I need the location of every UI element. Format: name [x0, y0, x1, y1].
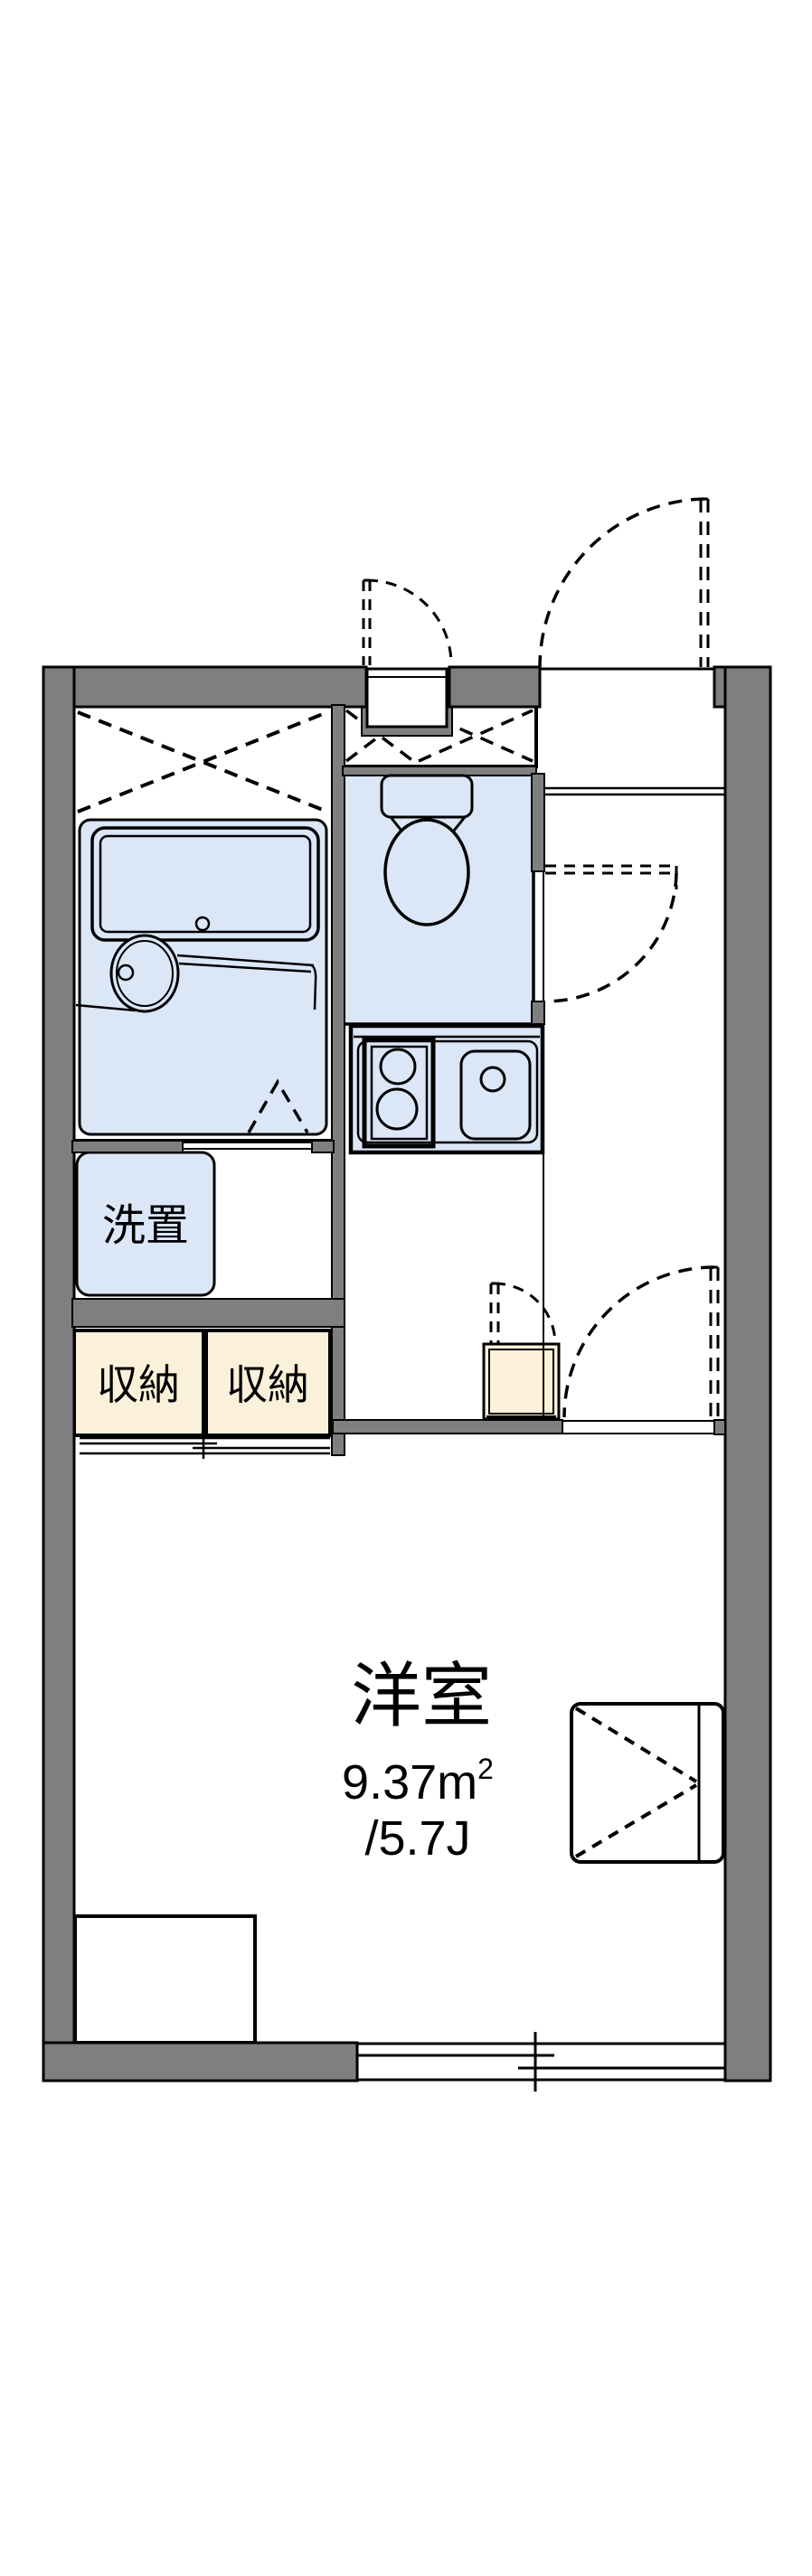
utility-compartment — [484, 1344, 559, 1419]
meter-box-door-swing — [364, 580, 451, 665]
center-divider-wall — [332, 705, 345, 1455]
living-room-jo: /5.7J — [364, 1811, 470, 1866]
sliding-window — [357, 2032, 725, 2092]
washer-space-label: 洗置 — [102, 1202, 189, 1250]
bottom-wall — [43, 2043, 357, 2081]
top-wall-left — [43, 667, 366, 707]
area-unit: m — [437, 1755, 477, 1810]
bath-bottom-wall-right — [312, 1141, 334, 1152]
living-room-area: 9.37m2 — [342, 1753, 494, 1810]
toilet-tank — [382, 776, 472, 817]
floor-plan-svg: 洋室 9.37m2 /5.7J 洗置 収納 収納 — [0, 0, 812, 2576]
toilet-right-wall-upper — [532, 774, 544, 871]
left-wall — [43, 667, 74, 2081]
utility-door-swing — [491, 1283, 555, 1344]
area-value: 9.37 — [342, 1755, 437, 1810]
storage-right-label: 収納 — [226, 1361, 309, 1408]
living-room-label: 洋室 — [351, 1656, 492, 1735]
bed-box — [571, 1704, 723, 1862]
floor-plan: 洋室 9.37m2 /5.7J 洗置 収納 収納 — [0, 0, 812, 2576]
toilet-bowl — [385, 820, 468, 925]
room-door-swing — [564, 1267, 718, 1417]
toilet — [382, 776, 472, 925]
area-unit-sup: 2 — [477, 1753, 494, 1785]
toilet-right-wall-lower — [532, 1001, 544, 1024]
washer-band-wall — [72, 1299, 345, 1327]
toilet-door-swing — [545, 866, 676, 1001]
bathtub — [92, 828, 318, 940]
top-wall-mid — [449, 667, 540, 707]
room-doorway-stub — [714, 1420, 725, 1434]
entrance-door-swing — [540, 499, 708, 667]
right-wall — [725, 667, 770, 2081]
room-boundary-wall — [333, 1420, 562, 1434]
unit-bath — [76, 820, 326, 1134]
storage-left-label: 収納 — [97, 1361, 180, 1408]
bath-bottom-wall-left — [72, 1141, 183, 1152]
furniture-box — [75, 1916, 255, 2043]
meter-box — [367, 669, 447, 727]
kitchen-counter — [351, 1026, 543, 1152]
